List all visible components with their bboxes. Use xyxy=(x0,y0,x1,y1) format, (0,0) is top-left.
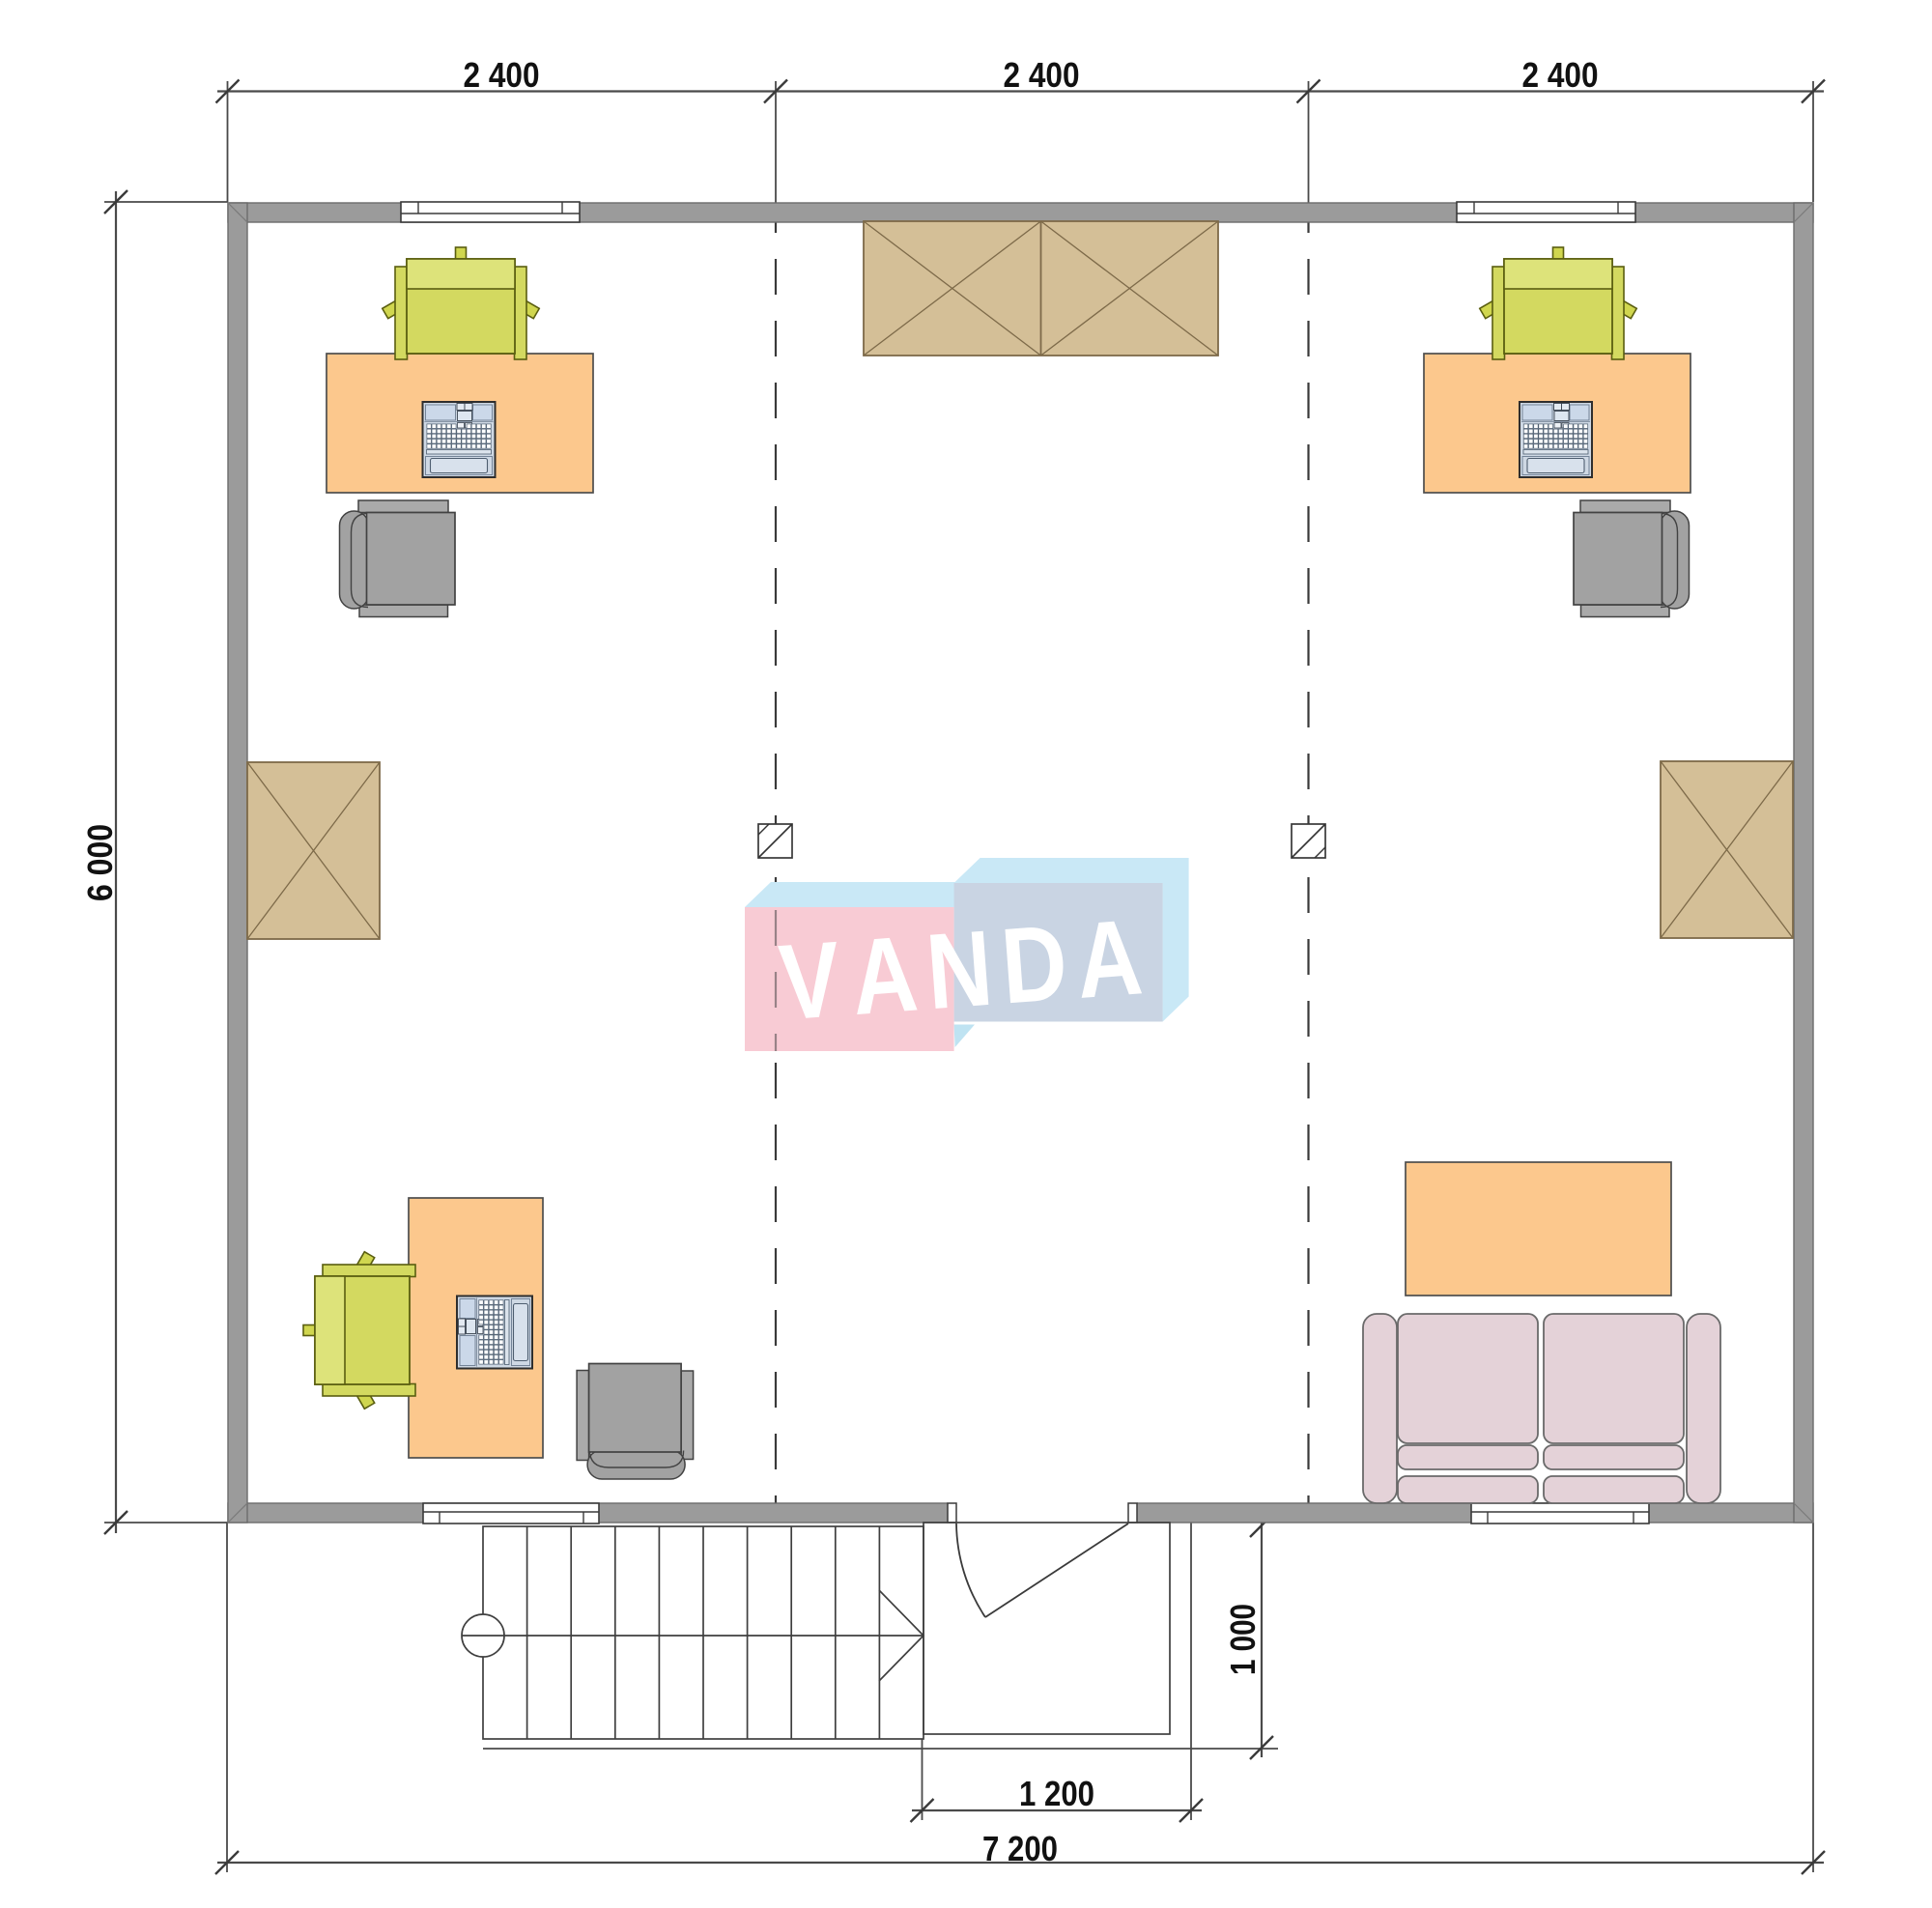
svg-text:V: V xyxy=(776,918,844,1042)
svg-text:N: N xyxy=(923,907,996,1032)
svg-text:2 400: 2 400 xyxy=(464,55,540,95)
svg-text:D: D xyxy=(998,901,1071,1026)
svg-text:2 400: 2 400 xyxy=(1004,55,1080,95)
svg-text:A: A xyxy=(1072,897,1146,1021)
svg-text:A: A xyxy=(848,913,922,1038)
svg-text:1 200: 1 200 xyxy=(1019,1774,1094,1813)
svg-text:7 200: 7 200 xyxy=(982,1829,1058,1868)
svg-text:2 400: 2 400 xyxy=(1522,55,1599,95)
svg-text:6 000: 6 000 xyxy=(80,824,120,901)
svg-text:1 000: 1 000 xyxy=(1223,1604,1263,1675)
